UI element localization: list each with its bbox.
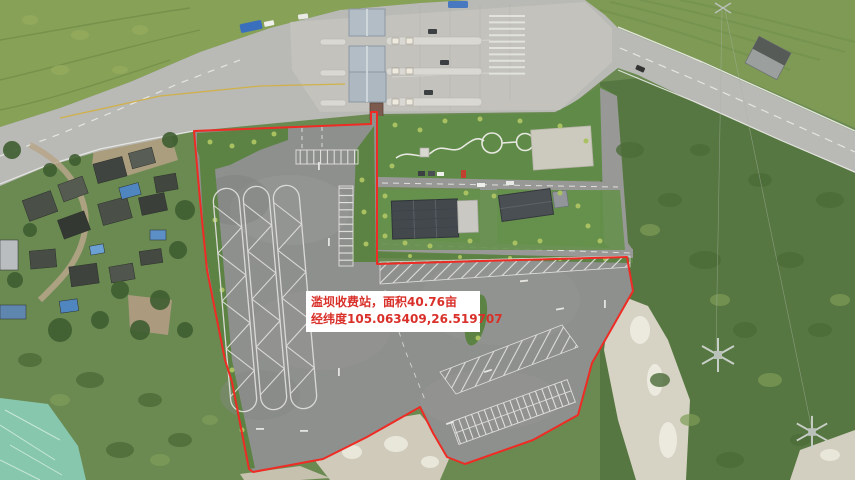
toll-canopy-roof <box>349 9 386 102</box>
aerial-photo: 滥坝收费站，面积40.76亩 经纬度105.063409,26.519707 <box>0 0 855 480</box>
red-car <box>461 170 466 178</box>
annotation-line-name-area: 滥坝收费站，面积40.76亩 <box>311 294 475 311</box>
facility-buildings <box>378 186 625 250</box>
blue-roof-house <box>150 230 166 240</box>
building-annex-light-roof <box>457 200 478 233</box>
blue-roof-house <box>59 299 78 313</box>
garden-pavilion <box>420 148 429 157</box>
annotation-line-coordinates: 经纬度105.063409,26.519707 <box>311 311 475 328</box>
light-building <box>0 240 18 270</box>
blue-roof-house <box>0 305 26 319</box>
aerial-photo-canvas <box>0 0 855 480</box>
annotation-label: 滥坝收费站，面积40.76亩 经纬度105.063409,26.519707 <box>306 291 480 332</box>
blue-truck <box>448 1 468 8</box>
concrete-pad <box>531 126 594 170</box>
